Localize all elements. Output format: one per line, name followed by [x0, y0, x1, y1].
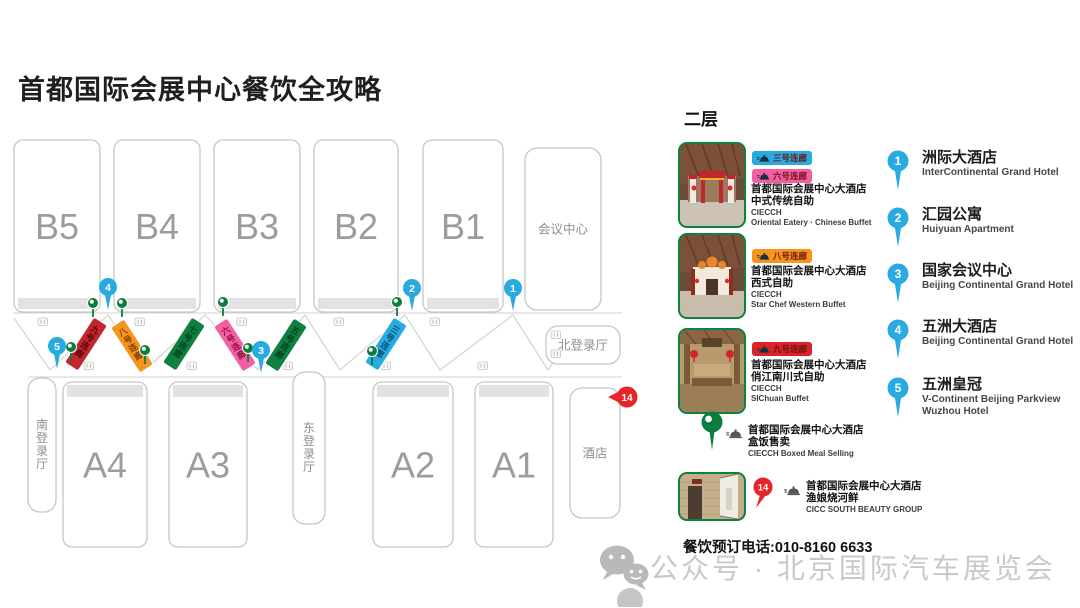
hall-label: A4: [83, 445, 127, 486]
venue-name: 首都国际会展中心大酒店: [748, 424, 864, 436]
map-hotel-pin-2: 2: [403, 279, 421, 311]
photo-river-fresh: [678, 472, 746, 521]
hall-A3: A3: [169, 382, 247, 547]
boxed-meal-pin-icon: [140, 345, 151, 365]
utensil-icon: [551, 350, 561, 358]
utensil-icon: [283, 362, 293, 370]
hotel-name-zh: 国家会议中心: [922, 263, 1073, 280]
venue-type: 盒饭售卖: [748, 436, 864, 448]
venue-name: 首都国际会展中心大酒店: [751, 183, 871, 195]
corridor-name-label: 五号连廊: [273, 324, 302, 361]
corridor-name-label: 六号连廊: [219, 324, 248, 361]
hotel-item-3: 3 国家会议中心 Beijing Continental Grand Hotel: [885, 263, 1073, 307]
venue-name: 首都国际会展中心大酒店: [751, 359, 867, 371]
hall-B3: B3: [214, 140, 300, 312]
map-marker-14: 14: [608, 387, 638, 408]
venue-type: 西式自助: [751, 277, 867, 289]
hall-label: 北登录厅: [558, 338, 608, 353]
hall-A4: A4: [63, 382, 147, 547]
cloche-icon: [726, 428, 743, 440]
corridor-tag-no9: 九号连廊: [752, 342, 812, 356]
hotel-item-4: 4 五洲大酒店 Beijing Continental Grand Hotel: [885, 319, 1073, 363]
gate-photo-illustration: [680, 144, 744, 226]
venue-type: 俏江南川式自助: [751, 371, 867, 383]
corridor-tag-label: 三号连廊: [773, 152, 807, 164]
legend-text-sichuan-buffet: 首都国际会展中心大酒店 俏江南川式自助 CIECCH SIChuan Buffe…: [751, 359, 867, 404]
restaurant-photo-illustration: [680, 330, 744, 412]
venue-type: 渔娘烧河鲜: [806, 492, 922, 504]
venue-abbr: CIECCH: [751, 384, 867, 394]
svg-text:5: 5: [54, 341, 60, 353]
map-corridor-三号连廊: 三号连廊: [365, 317, 408, 371]
hall-酒店: 酒店: [570, 388, 620, 518]
hotel-pin-3-icon: 3: [885, 263, 911, 307]
corridor-tag-no3: 三号连廊: [752, 151, 812, 165]
hall-label: B1: [441, 206, 485, 247]
svg-text:14: 14: [621, 393, 633, 404]
hall-label: 酒店: [582, 447, 607, 461]
corridor-name-label: 七号连廊: [171, 323, 200, 360]
utensil-icon: [478, 362, 488, 370]
pin-number: 14: [758, 483, 769, 494]
corridor-tag-no8: 八号连廊: [752, 249, 812, 263]
map-hotel-pin-1: 1: [504, 279, 522, 311]
boxed-meal-pin-icon: [392, 297, 403, 317]
venue-name: 首都国际会展中心大酒店: [806, 480, 922, 492]
venue-abbr: CIECCH: [751, 290, 867, 300]
svg-text:5: 5: [895, 381, 902, 395]
hall-label: B3: [235, 206, 279, 247]
hall-A2: A2: [373, 382, 453, 547]
hall-东登录厅: 东登录厅: [293, 372, 325, 524]
corridor-name-label: 九号连廊: [73, 323, 102, 361]
utensil-icon: [551, 331, 561, 339]
venue-en: Oriental Eatery · Chinese Buffet: [751, 218, 871, 228]
hall-label: 东登录厅: [303, 421, 315, 474]
photo-sichuan-buffet: [678, 328, 746, 414]
utensil-icon: [430, 318, 440, 326]
map-corridor-五号连廊: 五号连廊: [265, 318, 308, 372]
boxed-meal-pin-icon: [117, 298, 128, 318]
hotel-name-zh: 汇园公寓: [922, 207, 1014, 224]
utensil-icon: [237, 318, 247, 326]
photo-chinese-buffet: [678, 142, 746, 228]
hotel-name-en: InterContinental Grand Hotel: [922, 167, 1059, 180]
svg-text:3: 3: [895, 267, 902, 281]
cloche-icon: [784, 485, 801, 497]
hall-会议中心: 会议中心: [525, 148, 601, 310]
corridor-tag-label: 八号连廊: [773, 250, 807, 262]
map-corridor-七号连廊: 七号连廊: [163, 317, 206, 371]
venue-en: Star Chef Western Buffet: [751, 300, 867, 310]
map-corridor-九号连廊: 九号连廊: [65, 317, 108, 371]
svg-text:3: 3: [258, 345, 264, 357]
utensil-icon: [187, 362, 197, 370]
boxed-meal-pin-icon: [66, 342, 77, 362]
hall-南登录厅: 南登录厅: [28, 378, 56, 512]
hotel-item-2: 2 汇园公寓 Huiyuan Apartment: [885, 207, 1014, 251]
utensil-icon: [334, 318, 344, 326]
svg-text:2: 2: [409, 283, 415, 295]
map-corridor-八号连廊: 八号连廊: [111, 319, 154, 373]
hotel-name-zh: 五洲皇冠: [922, 377, 1060, 394]
boxed-meal-pin-icon: [88, 298, 99, 318]
green-pin-icon: [698, 411, 726, 453]
photo-western-buffet: [678, 233, 746, 319]
svg-text:4: 4: [105, 282, 111, 294]
corridor-name-label: 八号连廊: [116, 325, 145, 363]
hotel-pin-1-icon: 1: [885, 150, 911, 194]
hotel-item-1: 1 洲际大酒店 InterContinental Grand Hotel: [885, 150, 1059, 194]
hall-B5: B5: [14, 140, 100, 312]
hall-label: 南登录厅: [36, 417, 48, 471]
hall-B1: B1: [423, 140, 503, 312]
page-title: 首都国际会展中心餐饮全攻略: [18, 68, 382, 107]
svg-text:4: 4: [895, 323, 902, 337]
venue-abbr: CIECCH: [751, 208, 871, 218]
map-hotel-pin-5: 5: [48, 337, 66, 369]
floor-label: 二层: [684, 105, 718, 130]
map-hotel-pin-4: 4: [99, 278, 117, 310]
venue-en: CICC SOUTH BEAUTY GROUP: [806, 505, 922, 515]
gate-photo-illustration: [680, 235, 744, 317]
phone-number: 餐饮预订电话:010-8160 6633: [683, 536, 872, 557]
venue-en: CIECCH Boxed Meal Selling: [748, 449, 864, 459]
svg-text:1: 1: [895, 154, 902, 168]
hotel-name-en: V-Continent Beijing Parkview: [922, 394, 1060, 407]
hall-label: A3: [186, 445, 230, 486]
corridor-tag-label: 六号连廊: [773, 170, 807, 182]
corridor-tag-label: 九号连廊: [773, 343, 807, 355]
venue-type: 中式传统自助: [751, 195, 871, 207]
boxed-meal-pin-icon: [367, 346, 378, 366]
utensil-icon: [135, 318, 145, 326]
cloche-icon: [757, 171, 770, 182]
hall-北登录厅: 北登录厅: [546, 326, 620, 364]
map-corridor-六号连廊: 六号连廊: [214, 318, 257, 372]
legend-text-chinese-buffet: 首都国际会展中心大酒店 中式传统自助 CIECCH Oriental Eater…: [751, 183, 871, 228]
legend-text-boxed-meal: 首都国际会展中心大酒店 盒饭售卖 CIECCH Boxed Meal Selli…: [748, 424, 864, 459]
hotel-name-en: Huiyuan Apartment: [922, 224, 1014, 237]
hotel-pin-2-icon: 2: [885, 207, 911, 251]
legend-text-western-buffet: 首都国际会展中心大酒店 西式自助 CIECCH Star Chef Wester…: [751, 265, 867, 310]
venue-name: 首都国际会展中心大酒店: [751, 265, 867, 277]
utensil-icon: [38, 318, 48, 326]
hotel-item-5: 5 五洲皇冠 V-Continent Beijing Parkview Wuzh…: [885, 377, 1060, 421]
svg-text:2: 2: [895, 211, 902, 225]
hall-B4: B4: [114, 140, 200, 312]
hall-label: B2: [334, 206, 378, 247]
svg-text:1: 1: [510, 283, 516, 295]
corridor-name-label: 三号连廊: [373, 323, 402, 360]
hotel-pin-5-icon: 5: [885, 377, 911, 421]
hall-label: B5: [35, 206, 79, 247]
hotel-name-zh: 洲际大酒店: [922, 150, 1059, 167]
boxed-meal-pin-icon: [218, 297, 229, 317]
hall-A1: A1: [475, 382, 553, 547]
hotel-name-en2: Wuzhou Hotel: [922, 406, 1060, 419]
wechat-icon: [596, 543, 652, 607]
hall-label: B4: [135, 206, 179, 247]
hall-label: 会议中心: [538, 222, 589, 237]
boxed-meal-pin-icon: [243, 343, 254, 363]
utensil-icon: [84, 362, 94, 370]
venue-en: SIChuan Buffet: [751, 394, 867, 404]
legend-text-river-fresh: 首都国际会展中心大酒店 渔娘烧河鲜 CICC SOUTH BEAUTY GROU…: [806, 480, 922, 515]
hotel-name-zh: 五洲大酒店: [922, 319, 1073, 336]
utensil-icon: [381, 362, 391, 370]
map-hotel-pin-3: 3: [252, 341, 270, 373]
hall-B2: B2: [314, 140, 398, 312]
cloche-icon: [757, 153, 770, 164]
walkway-outline: [14, 315, 560, 370]
hall-label: A1: [492, 445, 536, 486]
hotel-pin-4-icon: 4: [885, 319, 911, 363]
page: 首都国际会展中心餐饮全攻略 B5B4B3B2B1会议中心A4A3A2A1酒店南登…: [0, 0, 1080, 608]
hallway-photo-illustration: [680, 474, 744, 519]
corridor-tag-no6: 六号连廊: [752, 169, 812, 183]
hotel-name-en: Beijing Continental Grand Hotel: [922, 280, 1073, 293]
cloche-icon: [757, 344, 770, 355]
cloche-icon: [757, 251, 770, 262]
map-pin-14-icon: 14: [750, 477, 776, 511]
hall-label: A2: [391, 445, 435, 486]
hotel-name-en: Beijing Continental Grand Hotel: [922, 336, 1073, 349]
